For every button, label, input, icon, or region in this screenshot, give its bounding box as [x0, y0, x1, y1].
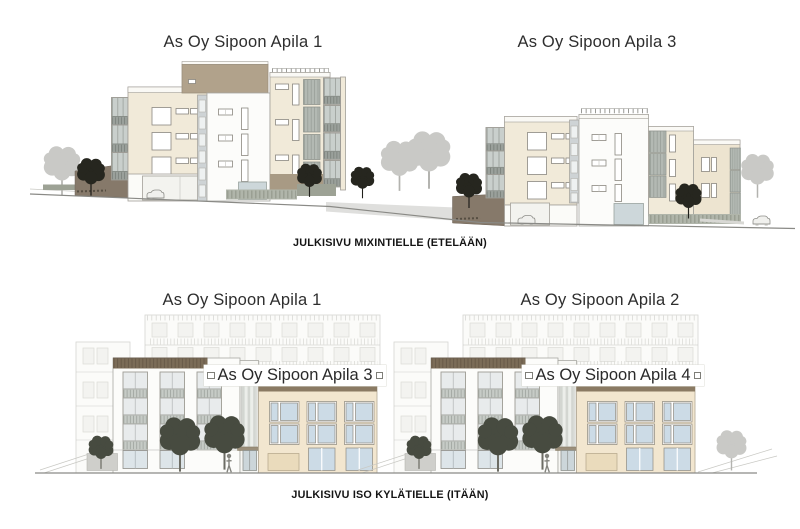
elevation-drawings	[0, 0, 800, 529]
square-marker-icon	[525, 372, 533, 380]
east-building-group	[40, 315, 380, 473]
penthouse-block	[182, 65, 268, 94]
title-apila1-east: As Oy Sipoon Apila 1	[142, 291, 342, 310]
car	[753, 216, 770, 226]
background-tree	[741, 154, 774, 198]
facade-label-apila3: As Oy Sipoon Apila 3	[204, 365, 386, 386]
title-apila1-south: As Oy Sipoon Apila 1	[143, 33, 343, 52]
beige-cornice-band	[259, 386, 378, 392]
background-tree	[717, 430, 747, 470]
square-marker-icon	[376, 372, 384, 380]
entrance-canopy	[238, 447, 262, 451]
hedge	[297, 184, 336, 196]
title-apila2-east: As Oy Sipoon Apila 2	[500, 291, 700, 310]
east-building-group-right	[358, 315, 698, 473]
balcony-stack-left	[112, 98, 129, 181]
south-caption: JULKISIVU MIXINTIELLE (ETELÄÄN)	[40, 237, 740, 249]
elevation-sheet: As Oy Sipoon Apila 1 As Oy Sipoon Apila …	[0, 0, 800, 529]
tree	[351, 167, 374, 199]
title-apila3-south: As Oy Sipoon Apila 3	[497, 33, 697, 52]
square-marker-icon	[694, 372, 702, 380]
east-caption: JULKISIVU ISO KYLÄTIELLE (ITÄÄN)	[40, 489, 740, 501]
entrance-glazing	[614, 204, 644, 225]
hedge	[226, 190, 297, 200]
retaining-wall	[453, 194, 511, 227]
east-elevation-drawing	[35, 315, 777, 473]
building-apila3-south	[453, 109, 774, 227]
south-elevation-drawing	[30, 62, 795, 229]
background-tree	[408, 131, 451, 188]
balcony-stack-left	[486, 128, 504, 199]
facade-label-apila4: As Oy Sipoon Apila 4	[522, 365, 704, 386]
square-marker-icon	[207, 372, 215, 380]
building-apila1-south	[43, 62, 374, 202]
ground-floor-panel	[268, 454, 299, 471]
shrub-row	[43, 185, 76, 191]
